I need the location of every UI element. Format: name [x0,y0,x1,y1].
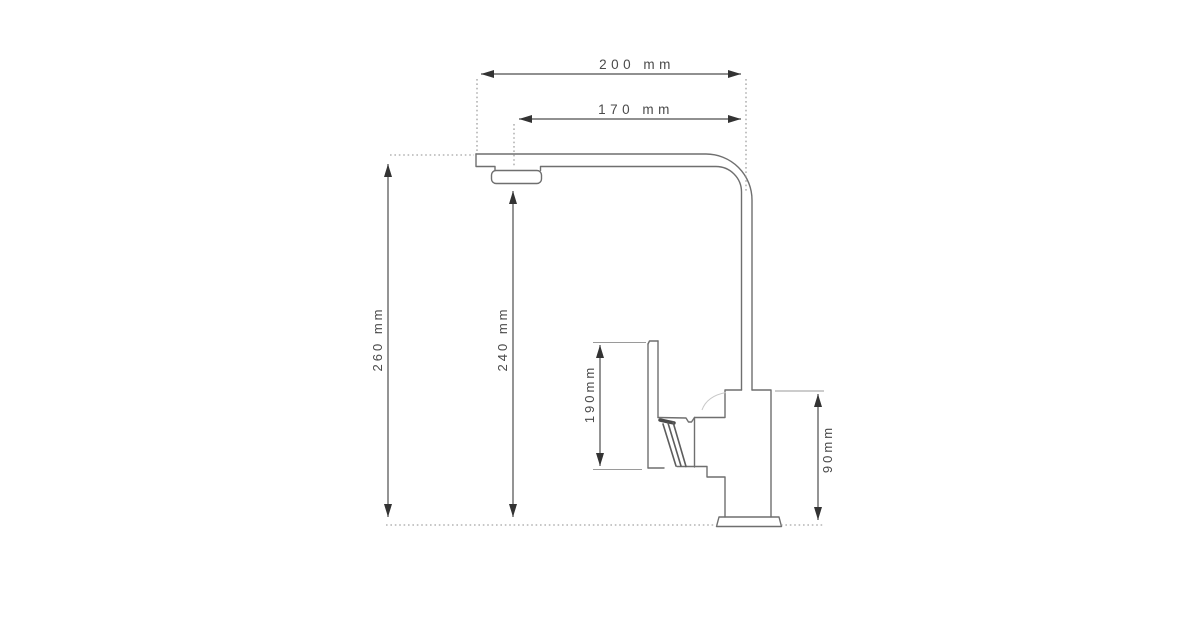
body-lower-left-profile [677,467,725,518]
dim-190-label: 190mm [582,365,597,423]
body-right-profile [752,390,771,517]
dimension-spout-reach-total: 200 mm [477,57,746,193]
aerator [492,171,542,184]
faucet-dimension-diagram: 200 mm 170 mm 260 mm 240 mm 190mm [0,0,1200,630]
dimension-spout-height: 240 mm [495,191,513,517]
body-highlight [702,393,726,411]
spout-inner-edge [541,167,742,391]
technical-drawing-canvas: 200 mm 170 mm 260 mm 240 mm 190mm [0,0,1200,630]
base-plate [717,517,782,527]
dim-170-label: 170 mm [598,102,674,117]
dimension-handle-height: 190mm [582,343,646,470]
spout-tip [476,154,495,171]
lever-hinge [660,420,686,467]
dim-260-label: 260 mm [370,307,385,372]
lever-top-cap [648,341,658,344]
body-left-profile [695,390,742,467]
dimension-body-height: 90mm [775,391,835,520]
dimension-total-height: 260 mm [370,155,474,517]
dimension-spout-reach-aerator: 170 mm [514,102,741,166]
dim-200-label: 200 mm [599,57,675,72]
hinge-pivot [660,420,674,423]
faucet-outline [476,154,782,527]
dim-240-label: 240 mm [495,307,510,372]
dim-90-label: 90mm [820,425,835,473]
spout-outer-edge [476,154,752,390]
